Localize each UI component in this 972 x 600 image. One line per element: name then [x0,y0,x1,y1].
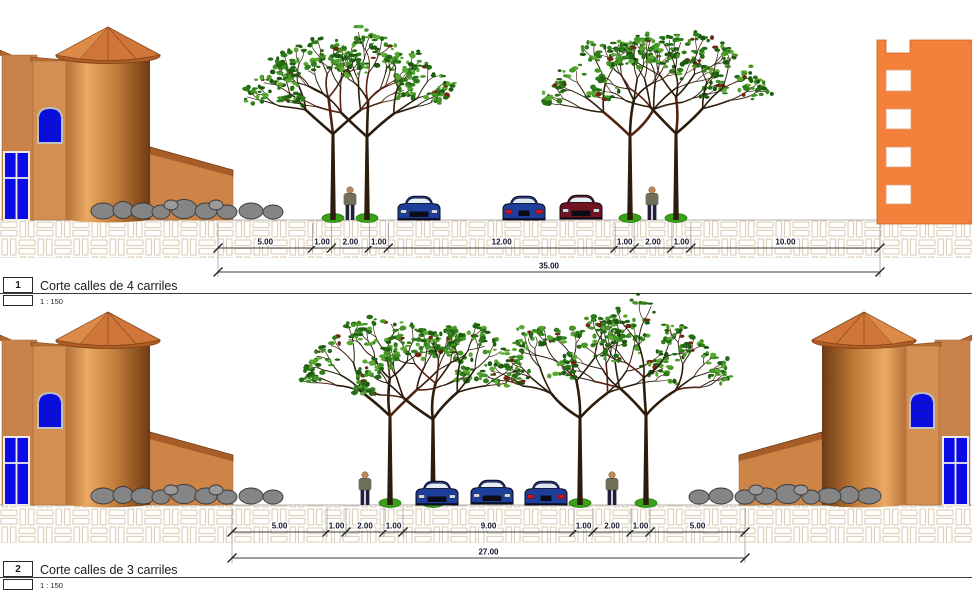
car-blue-front [471,480,513,504]
person [606,472,619,505]
person [359,472,372,505]
view-title-block-1: 1 Corte calles de 4 carriles 1 : 150 [0,277,972,311]
dim-label: 1.00 [674,238,690,247]
pavement [0,220,972,258]
dim-label: 2.00 [357,522,373,531]
dim-label: 1.00 [576,522,592,531]
building-left-tower [0,312,283,508]
car-blue-front [398,196,440,220]
section-view-2: 5.001.002.001.009.001.002.001.005.0027.0… [0,293,972,563]
person [646,187,659,220]
view-number-sub-box [3,579,33,590]
dim-label: 2.00 [604,522,620,531]
dim-label: 1.00 [386,522,402,531]
building-orange-tower [877,40,972,224]
dim-label: 5.00 [272,522,288,531]
tree [547,293,733,508]
dim-label: 35.00 [539,262,560,271]
building-left-tower [0,27,283,223]
title-rule [0,577,972,578]
car-maroon [560,195,602,219]
dim-label: 2.00 [645,238,661,247]
car-blue-front [416,481,458,505]
dim-label: 5.00 [690,522,706,531]
view-scale: 1 : 150 [40,297,63,306]
person [344,187,357,220]
dim-label: 1.00 [371,238,387,247]
dim-label: 12.00 [492,238,513,247]
dim-label: 5.00 [258,238,274,247]
dim-label: 1.00 [633,522,649,531]
dim-label: 27.00 [478,548,499,557]
car-blue-rear [503,196,545,220]
view-number: 2 [3,561,33,577]
view-number-sub-box [3,295,33,306]
view-scale: 1 : 150 [40,581,63,590]
dim-label: 9.00 [481,522,497,531]
view-title: Corte calles de 3 carriles [40,563,178,577]
section-view-1: 5.001.002.001.0012.001.002.001.0010.0035… [0,25,972,277]
view-number: 1 [3,277,33,293]
title-rule [0,293,972,294]
view-title-block-2: 2 Corte calles de 3 carriles 1 : 150 [0,561,972,595]
dim-label: 10.00 [775,238,796,247]
dim-label: 2.00 [343,238,359,247]
street-trees [242,25,774,223]
dim-label: 1.00 [314,238,330,247]
car-blue-rear [525,481,567,505]
building-right-tower [689,312,972,508]
drawing-sheet: 5.001.002.001.0012.001.002.001.0010.0035… [0,0,972,600]
dim-label: 1.00 [329,522,345,531]
dim-label: 1.00 [617,238,633,247]
view-title: Corte calles de 4 carriles [40,279,178,293]
